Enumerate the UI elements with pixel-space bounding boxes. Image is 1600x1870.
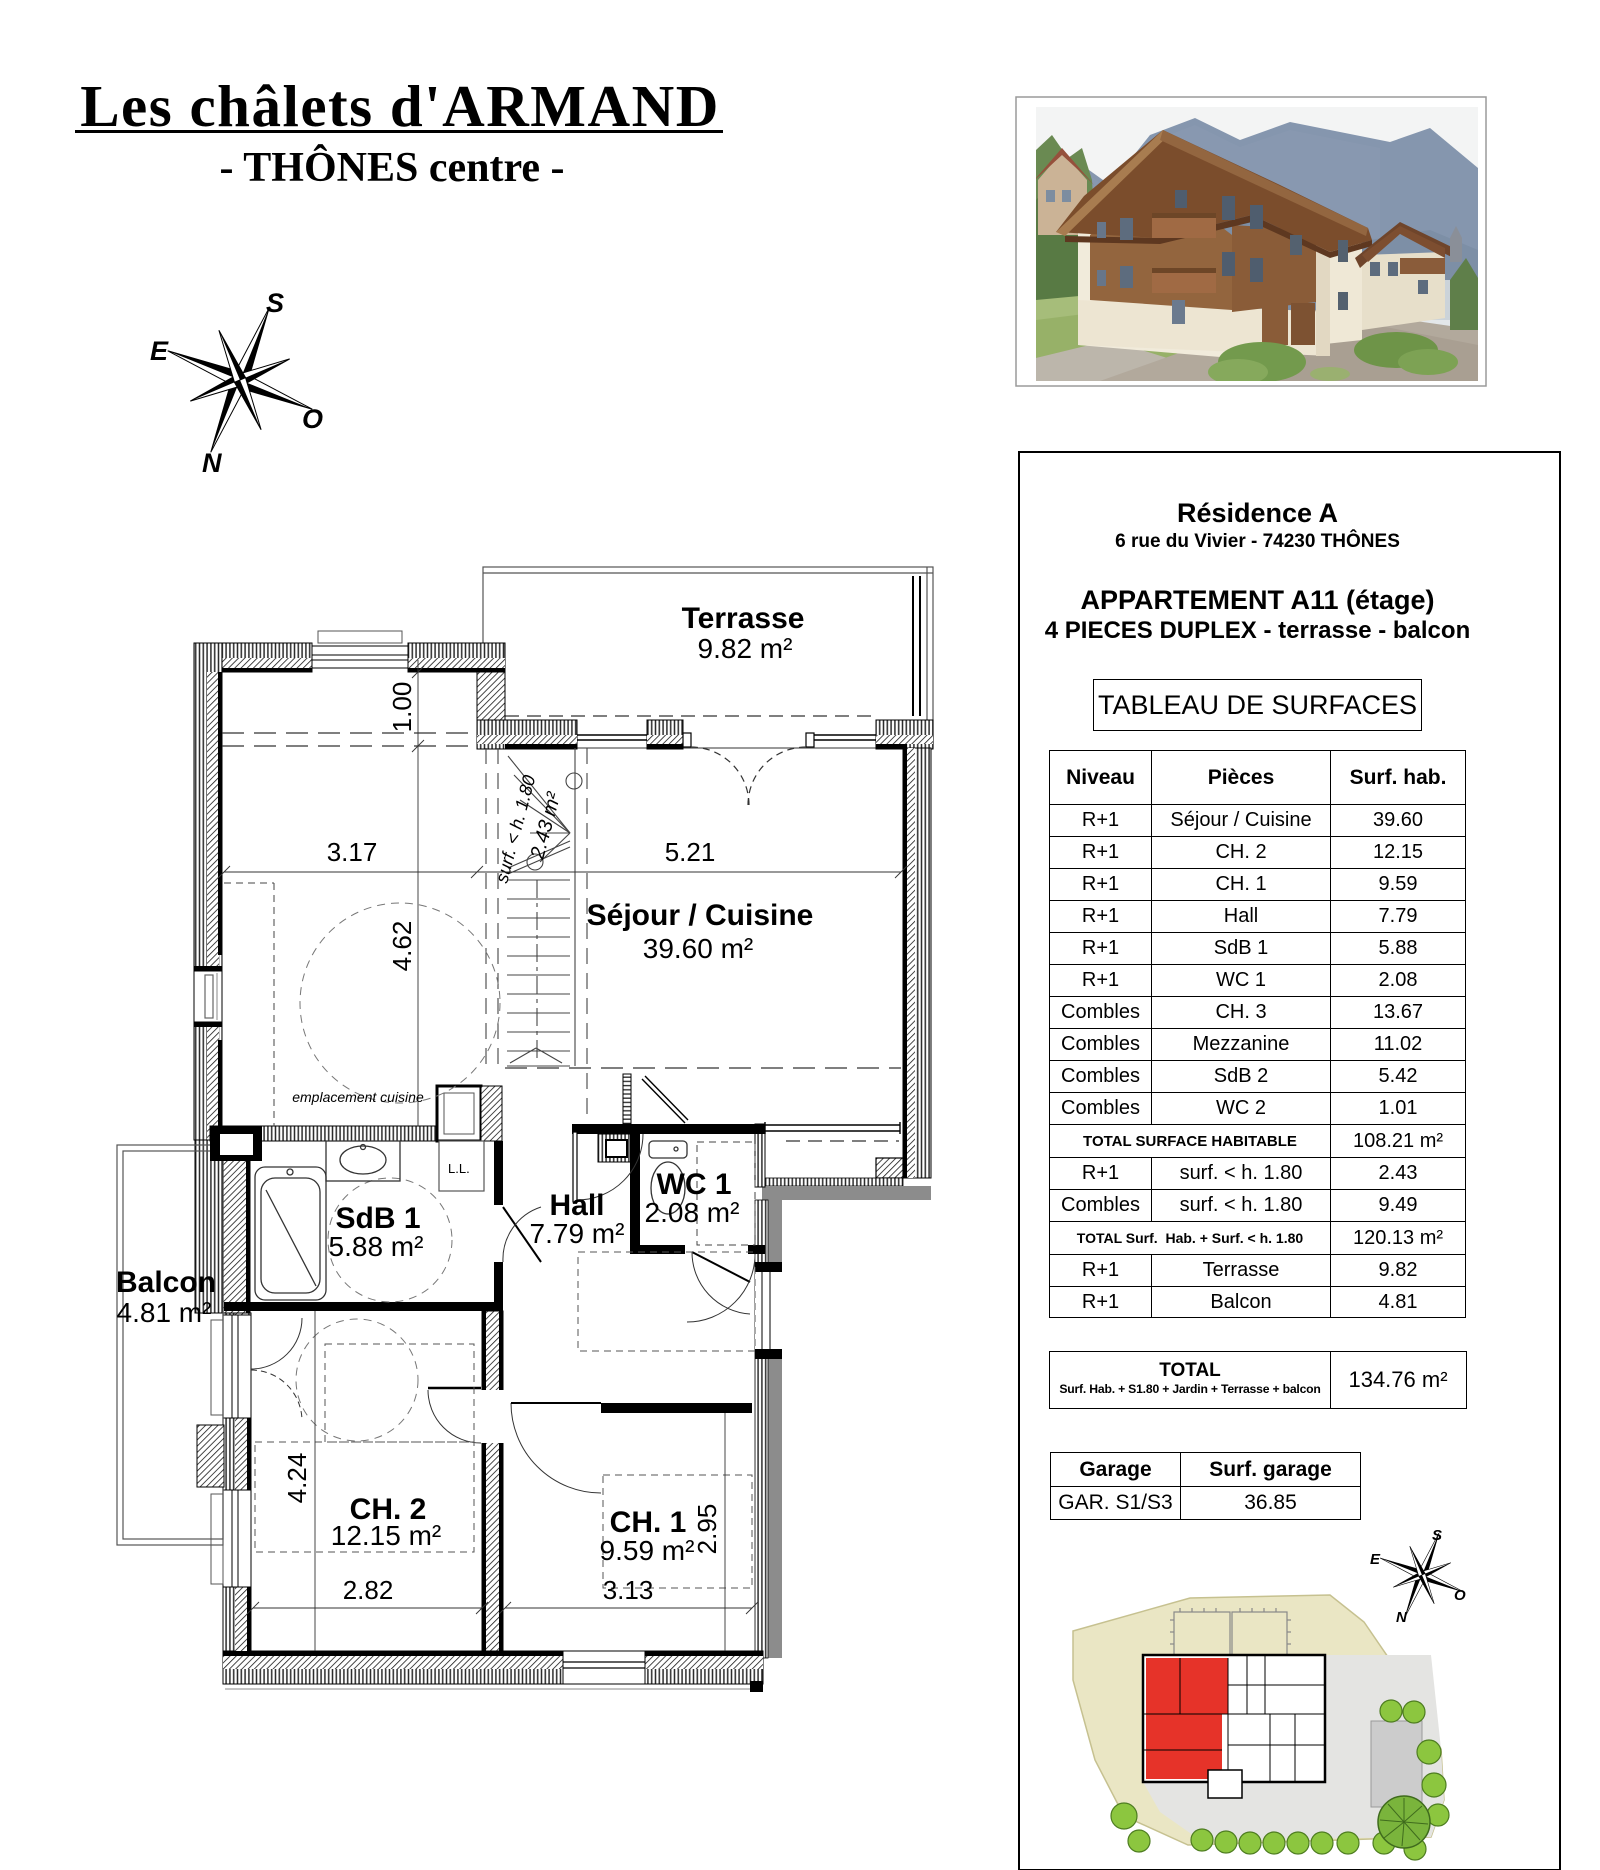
svg-text:Balcon: Balcon <box>116 1266 216 1299</box>
svg-text:emplacement cuisine: emplacement cuisine <box>292 1089 424 1105</box>
svg-text:2.95: 2.95 <box>692 1504 722 1555</box>
svg-text:E: E <box>150 336 169 366</box>
svg-text:O: O <box>1454 1587 1466 1604</box>
svg-text:N: N <box>202 448 222 478</box>
svg-text:12.15 m²: 12.15 m² <box>331 1520 442 1551</box>
svg-text:2.82: 2.82 <box>343 1575 394 1605</box>
svg-text:3.13: 3.13 <box>603 1575 654 1605</box>
svg-text:O: O <box>302 404 323 434</box>
svg-text:9.82 m²: 9.82 m² <box>698 633 793 664</box>
svg-text:39.60 m²: 39.60 m² <box>643 933 754 964</box>
svg-text:4.62: 4.62 <box>387 921 417 972</box>
svg-text:S: S <box>1432 1527 1442 1544</box>
svg-text:5.21: 5.21 <box>665 837 716 867</box>
svg-text:Séjour / Cuisine: Séjour / Cuisine <box>587 899 814 932</box>
svg-text:N: N <box>1396 1609 1408 1626</box>
svg-text:2.08 m²: 2.08 m² <box>645 1197 740 1228</box>
svg-text:7.79 m²: 7.79 m² <box>530 1218 625 1249</box>
svg-text:surf. < h. 1.80: surf. < h. 1.80 <box>492 773 540 885</box>
svg-text:3.17: 3.17 <box>327 837 378 867</box>
svg-text:L.L.: L.L. <box>448 1161 470 1176</box>
svg-text:E: E <box>1370 1551 1381 1568</box>
svg-text:1.00: 1.00 <box>387 682 417 733</box>
svg-text:9.59 m²: 9.59 m² <box>600 1535 695 1566</box>
svg-text:S: S <box>266 288 284 318</box>
svg-text:5.88 m²: 5.88 m² <box>329 1231 424 1262</box>
svg-text:Terrasse: Terrasse <box>682 602 805 635</box>
svg-text:4.24: 4.24 <box>282 1453 312 1504</box>
svg-text:4.81 m²: 4.81 m² <box>117 1297 212 1328</box>
